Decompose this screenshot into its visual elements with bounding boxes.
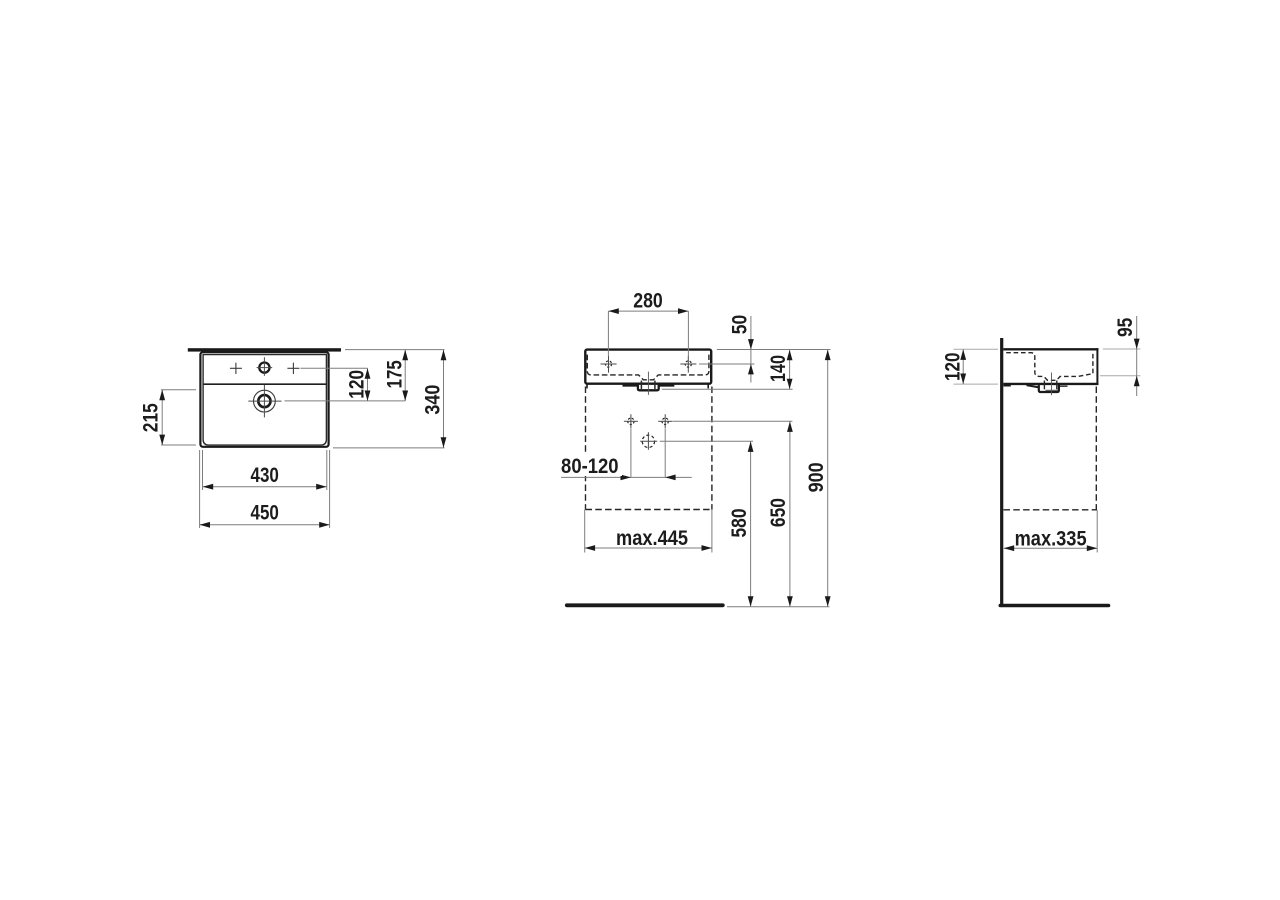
svg-text:580: 580 [727,508,751,537]
svg-text:900: 900 [804,462,828,492]
svg-text:340: 340 [421,385,445,415]
svg-text:95: 95 [1113,318,1137,337]
svg-text:50: 50 [727,315,751,335]
svg-text:120: 120 [940,353,964,382]
svg-text:430: 430 [251,463,279,487]
svg-text:175: 175 [382,360,406,388]
svg-text:80-120: 80-120 [561,454,619,478]
svg-text:140: 140 [766,355,790,382]
svg-text:120: 120 [345,370,369,399]
svg-text:215: 215 [138,403,162,432]
svg-text:450: 450 [251,500,279,524]
svg-text:max.445: max.445 [616,526,688,550]
svg-text:max.335: max.335 [1015,526,1087,550]
svg-text:650: 650 [766,498,790,527]
svg-text:280: 280 [633,289,663,313]
